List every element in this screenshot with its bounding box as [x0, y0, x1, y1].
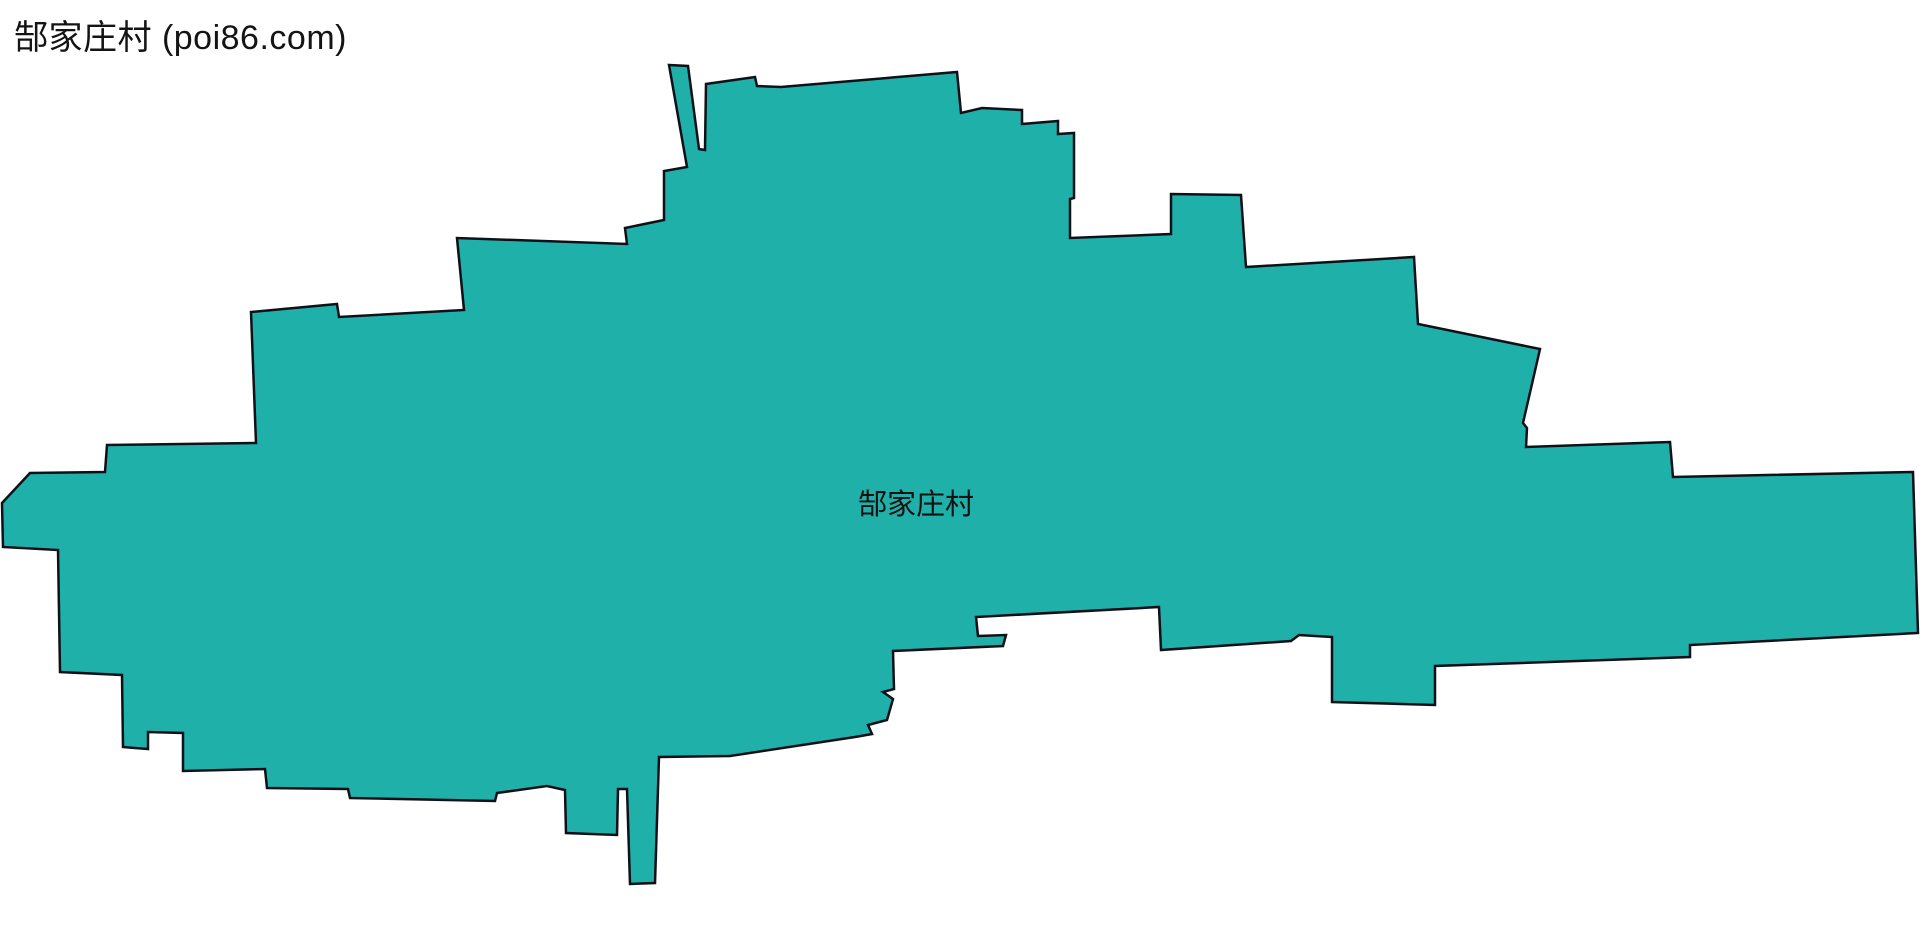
page-title: 郜家庄村 (poi86.com) [14, 10, 347, 59]
map-canvas: 郜家庄村 郜家庄村 (poi86.com) [0, 0, 1920, 951]
village-map-svg: 郜家庄村 [0, 0, 1920, 951]
region-label: 郜家庄村 [858, 488, 974, 521]
watermark-overlay [0, 0, 1920, 951]
